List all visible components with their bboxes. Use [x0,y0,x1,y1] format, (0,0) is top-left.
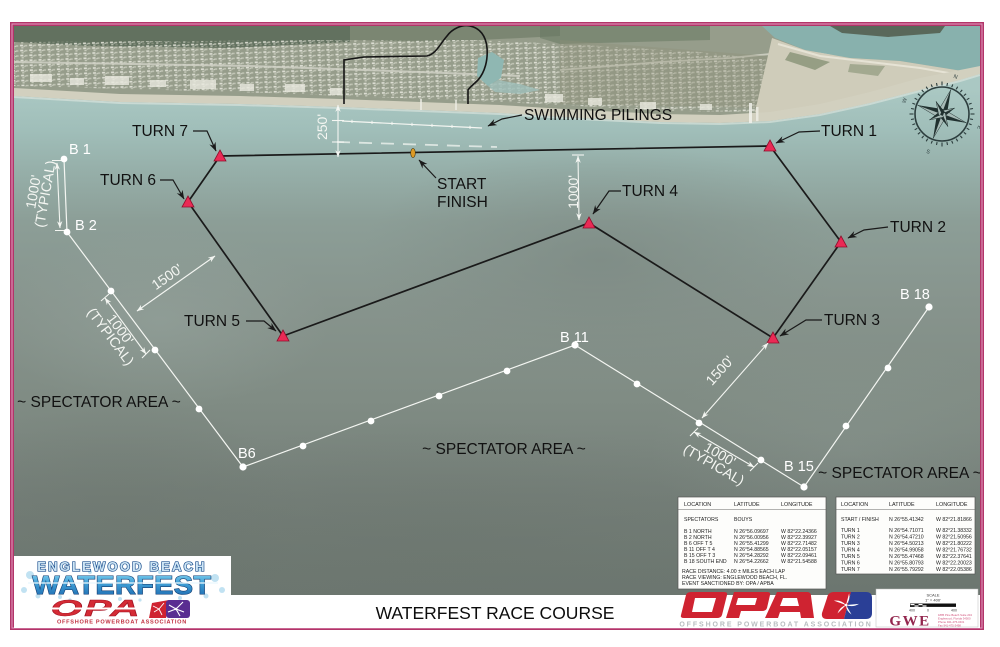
svg-text:W 82°21.54588: W 82°21.54588 [781,559,817,565]
svg-text:B 1: B 1 [69,142,91,158]
svg-text:TURN 5: TURN 5 [184,313,240,330]
svg-text:TURN 6: TURN 6 [841,561,860,567]
svg-text:W 82°21.76732: W 82°21.76732 [936,548,972,554]
svg-text:FINISH: FINISH [437,194,488,211]
svg-text:N 26°55.79292: N 26°55.79292 [889,567,924,573]
svg-text:W 82°22.20023: W 82°22.20023 [936,561,972,567]
svg-text:START / FINISH: START / FINISH [841,517,879,523]
svg-text:TURN 7: TURN 7 [132,123,188,140]
svg-text:W 82°21.50956: W 82°21.50956 [936,535,972,541]
svg-text:W 82°21.38332: W 82°21.38332 [936,528,972,534]
svg-text:GWE: GWE [889,614,930,630]
svg-text:W 82°21.80222: W 82°21.80222 [936,541,972,547]
svg-text:B 15: B 15 [784,459,814,475]
svg-text:TURN 4: TURN 4 [841,548,860,554]
svg-text:BOUYS: BOUYS [734,517,753,523]
svg-text:400: 400 [951,609,957,613]
svg-text:TURN 2: TURN 2 [841,535,860,541]
svg-text:W 82°22.37641: W 82°22.37641 [936,554,972,560]
svg-text:N 26°54.47210: N 26°54.47210 [889,535,924,541]
svg-text:WATERFEST RACE COURSE: WATERFEST RACE COURSE [376,603,615,623]
svg-text:OFFSHORE POWERBOAT ASSOCIATION: OFFSHORE POWERBOAT ASSOCIATION [57,620,187,626]
svg-text:1000': 1000' [565,175,581,209]
svg-text:B 2: B 2 [75,218,97,234]
svg-text:LOCATION: LOCATION [684,502,711,508]
svg-text:B6: B6 [238,446,256,462]
svg-text:SWIMMING PILINGS: SWIMMING PILINGS [524,107,672,124]
svg-text:400: 400 [909,609,915,613]
svg-text:SPECTATORS: SPECTATORS [684,517,719,523]
svg-text:TURN 4: TURN 4 [622,183,678,200]
svg-text:N 26°55.41342: N 26°55.41342 [889,517,924,523]
svg-text:~ SPECTATOR AREA ~: ~ SPECTATOR AREA ~ [17,394,181,411]
svg-text:TURN 7: TURN 7 [841,567,860,573]
svg-text:N 26°54.50213: N 26°54.50213 [889,541,924,547]
svg-text:B 18: B 18 [900,287,930,303]
svg-text:N 26°54.99058: N 26°54.99058 [889,548,924,554]
svg-text:N 26°54.71071: N 26°54.71071 [889,528,924,534]
svg-text:1" = 400': 1" = 400' [925,598,941,603]
svg-text:~ SPECTATOR AREA ~: ~ SPECTATOR AREA ~ [422,441,586,458]
svg-text:LATITUDE: LATITUDE [734,502,760,508]
svg-text:250': 250' [314,114,330,140]
svg-text:~ SPECTATOR AREA ~: ~ SPECTATOR AREA ~ [818,465,982,482]
svg-text:START: START [437,176,487,193]
svg-text:LOCATION: LOCATION [841,502,868,508]
svg-text:TURN 6: TURN 6 [100,172,156,189]
svg-text:0: 0 [927,609,929,613]
svg-text:W 82°22.05386: W 82°22.05386 [936,567,972,573]
svg-text:OFFSHORE POWERBOAT ASSOCIATION: OFFSHORE POWERBOAT ASSOCIATION [679,622,872,629]
svg-text:N 26°55.80793: N 26°55.80793 [889,561,924,567]
svg-text:EVENT SANCTIONED BY: OPA / AP: EVENT SANCTIONED BY: OPA / APBA [682,581,774,587]
svg-text:LONGITUDE: LONGITUDE [936,502,968,508]
svg-text:TURN 1: TURN 1 [841,528,860,534]
svg-text:N 26°55.47468: N 26°55.47468 [889,554,924,560]
svg-text:N 26°54.22662: N 26°54.22662 [734,559,769,565]
svg-text:LONGITUDE: LONGITUDE [781,502,813,508]
svg-text:B 11: B 11 [560,330,589,346]
svg-text:TURN 3: TURN 3 [841,541,860,547]
svg-text:W 82°21.81866: W 82°21.81866 [936,517,972,523]
svg-text:Fax 941-475-3498: Fax 941-475-3498 [938,624,961,628]
svg-text:TURN 3: TURN 3 [824,312,880,329]
svg-text:TURN 2: TURN 2 [890,219,946,236]
svg-text:TURN 5: TURN 5 [841,554,860,560]
svg-text:B 18 SOUTH END: B 18 SOUTH END [684,559,727,565]
svg-text:LATITUDE: LATITUDE [889,502,915,508]
svg-text:TURN 1: TURN 1 [821,123,877,140]
